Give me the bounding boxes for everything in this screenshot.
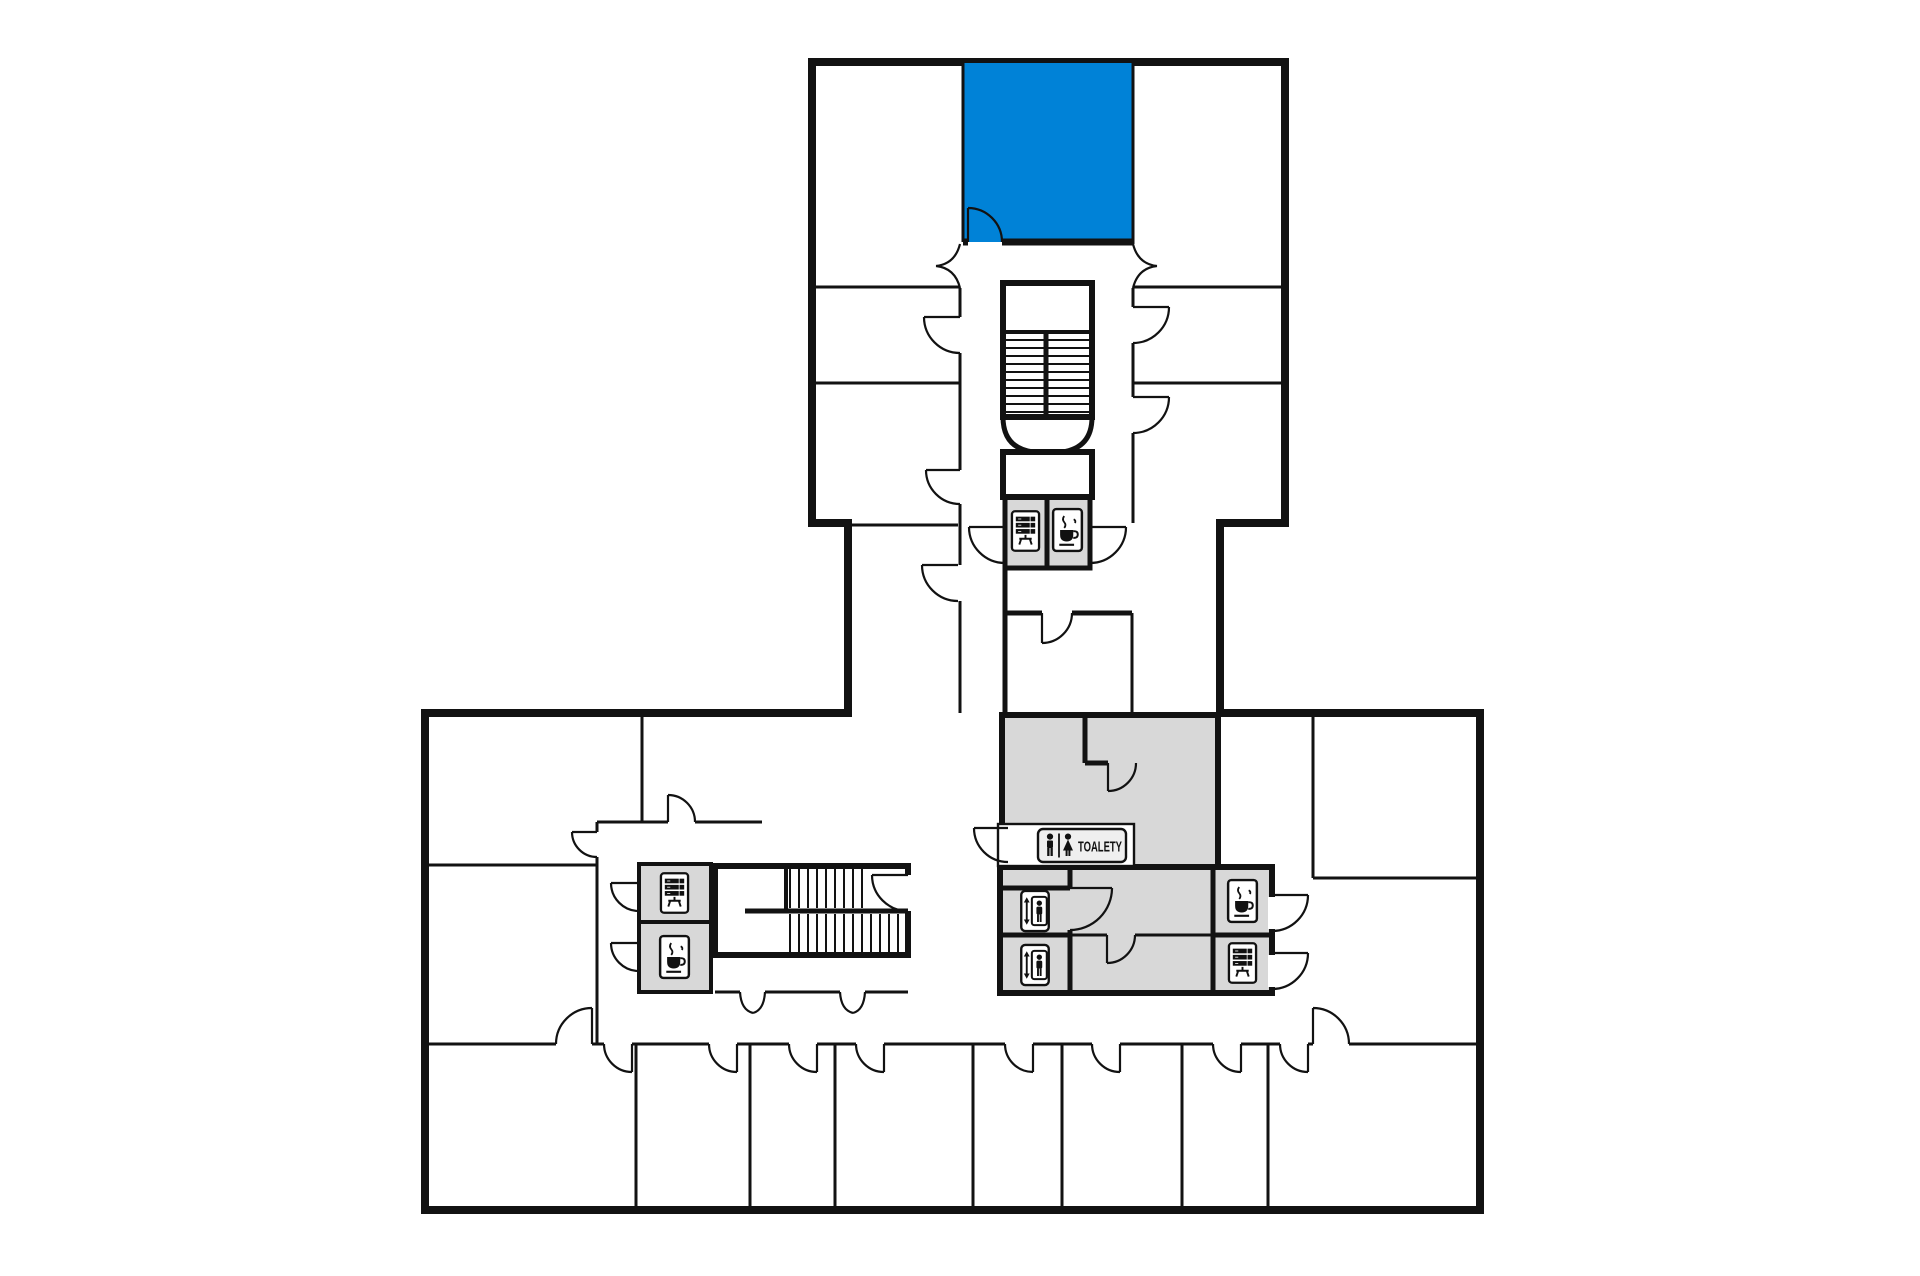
elevator-icon bbox=[1021, 945, 1049, 985]
elevator-icon bbox=[1021, 891, 1049, 931]
vending-machine-icon bbox=[1229, 943, 1256, 983]
floor-plan-page: TOALETY bbox=[0, 0, 1920, 1276]
vending-machine-icon bbox=[661, 873, 688, 913]
floor-plan-canvas: TOALETY bbox=[0, 0, 1920, 1276]
coffee-icon bbox=[1228, 880, 1257, 922]
coffee-icon bbox=[660, 936, 689, 978]
building-outline bbox=[425, 62, 1480, 1210]
toilet-sign: TOALETY bbox=[1038, 829, 1126, 862]
vending-machine-icon bbox=[1012, 511, 1039, 551]
toilet-sign-label: TOALETY bbox=[1078, 840, 1122, 856]
coffee-icon bbox=[1053, 509, 1082, 551]
